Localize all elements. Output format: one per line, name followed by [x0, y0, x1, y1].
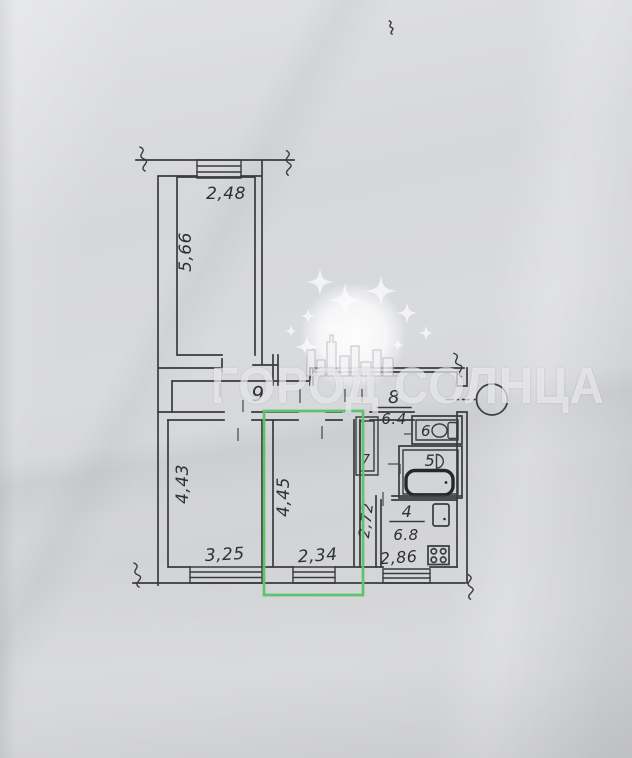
top-room-walls: [136, 160, 294, 585]
stray-mark: [389, 21, 393, 34]
toilet-bowl-icon: [432, 424, 447, 437]
room-number-wc: 6: [421, 422, 431, 440]
window-living-room: [190, 567, 262, 583]
room-number-bath: 5: [425, 451, 436, 470]
dim-kitchen-width: 2,86: [379, 547, 418, 569]
dim-living-width: 3,25: [204, 544, 245, 566]
dim-top-room-width: 2,48: [206, 184, 246, 204]
window-kitchen: [383, 569, 430, 583]
wall-break-marks: [134, 147, 475, 599]
entrance-door: [446, 384, 508, 415]
toilet-tank-icon: [448, 423, 457, 439]
window-highlight-room: [293, 567, 335, 583]
dim-highlight-room-width: 2,34: [297, 545, 338, 568]
room-number-kitchen: 4: [402, 502, 413, 521]
fridge-handle-dot: [443, 518, 446, 521]
bathtub-drain-dot: [445, 481, 448, 484]
stove-icon: [428, 546, 449, 565]
dim-hallway-length: 2,72: [355, 502, 377, 539]
room-number-corridor: 9: [251, 382, 264, 406]
dim-highlight-room-height: 4,45: [274, 477, 294, 517]
window-top-room: [197, 160, 241, 178]
floor-plan-photo: 2,48 5,66 9 8 6.4 7 6 5 4 6.8 4,43 4,45 …: [0, 0, 632, 758]
area-kitchen: 6.8: [393, 526, 418, 544]
dim-top-room-height: 5,66: [176, 232, 196, 272]
area-hall: 6.4: [381, 410, 406, 428]
room-number-hall: 8: [388, 387, 400, 408]
washbasin-icon: [437, 455, 444, 469]
door-swing-circle: [477, 384, 508, 415]
main-partition-wall: [158, 412, 414, 420]
floor-plan-drawing: 2,48 5,66 9 8 6.4 7 6 5 4 6.8 4,43 4,45 …: [0, 0, 632, 758]
wc-room: [412, 416, 462, 444]
door-opening-marks: [220, 383, 412, 506]
dim-living-height: 4,43: [173, 464, 193, 504]
fridge-icon: [433, 504, 449, 526]
